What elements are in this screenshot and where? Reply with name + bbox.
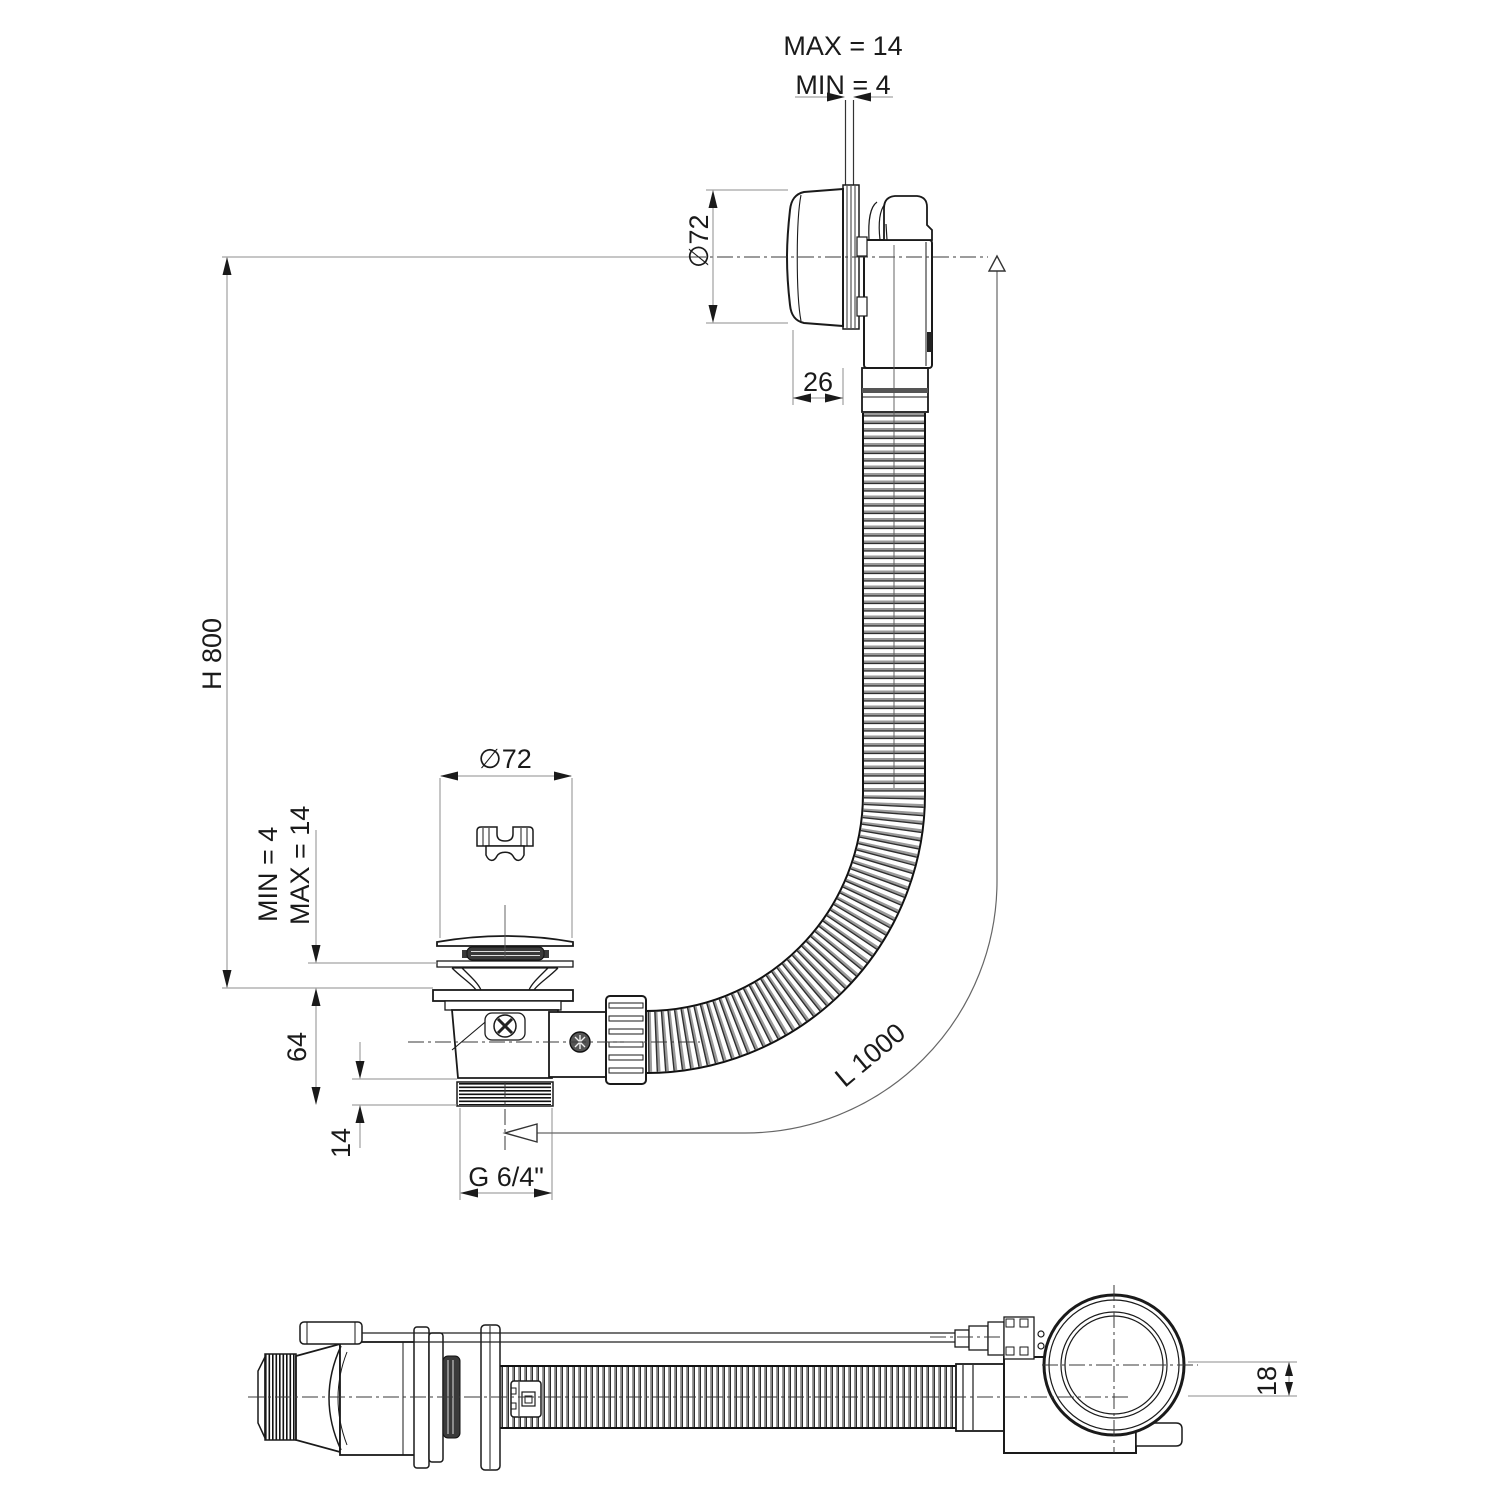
hose-nut: [606, 996, 646, 1084]
overflow-housing: [864, 240, 932, 368]
dim-label-g64: G 6/4": [468, 1162, 544, 1192]
overflow-cap: [884, 196, 932, 240]
dim-label-min-top: MIN = 4: [795, 70, 890, 100]
drain-washer: [437, 961, 573, 967]
drain-assembly: [433, 827, 646, 1106]
bath-drain-overflow-drawing: MAX = 14 MIN = 4 ∅72 26 H 800 ∅72 MIN = …: [0, 0, 1500, 1500]
side-view-boss: [300, 1322, 362, 1344]
drain-flange: [433, 990, 573, 1001]
drain-clip: [477, 827, 533, 860]
dim-label-max-drain: MAX = 14: [285, 806, 315, 925]
dim-label-64: 64: [282, 1032, 312, 1062]
flexible-hose: [646, 413, 894, 1042]
dim-label-min-drain: MIN = 4: [253, 827, 283, 922]
dim-label-18: 18: [1252, 1366, 1282, 1396]
technical-drawing-page: MAX = 14 MIN = 4 ∅72 26 H 800 ∅72 MIN = …: [0, 0, 1500, 1500]
drain-gasket: [467, 947, 544, 960]
side-view-clip: [511, 1381, 541, 1417]
axis-offset-dimension: 18: [1188, 1362, 1297, 1396]
overflow-assembly: [787, 100, 932, 412]
dim-label-26: 26: [803, 367, 833, 397]
dim-label-l1000: L 1000: [829, 1017, 911, 1092]
side-view-body-cone: [296, 1344, 340, 1452]
dim-label-14: 14: [326, 1128, 356, 1158]
dim-label-overflow-dia: ∅72: [684, 214, 714, 268]
side-view-body: [340, 1342, 425, 1455]
dim-label-h800: H 800: [197, 618, 227, 690]
side-view: 18: [248, 1285, 1297, 1470]
side-view-cable: [362, 1317, 1044, 1359]
dim-label-max-top: MAX = 14: [783, 31, 902, 61]
dim-label-drain-dia: ∅72: [478, 744, 532, 774]
